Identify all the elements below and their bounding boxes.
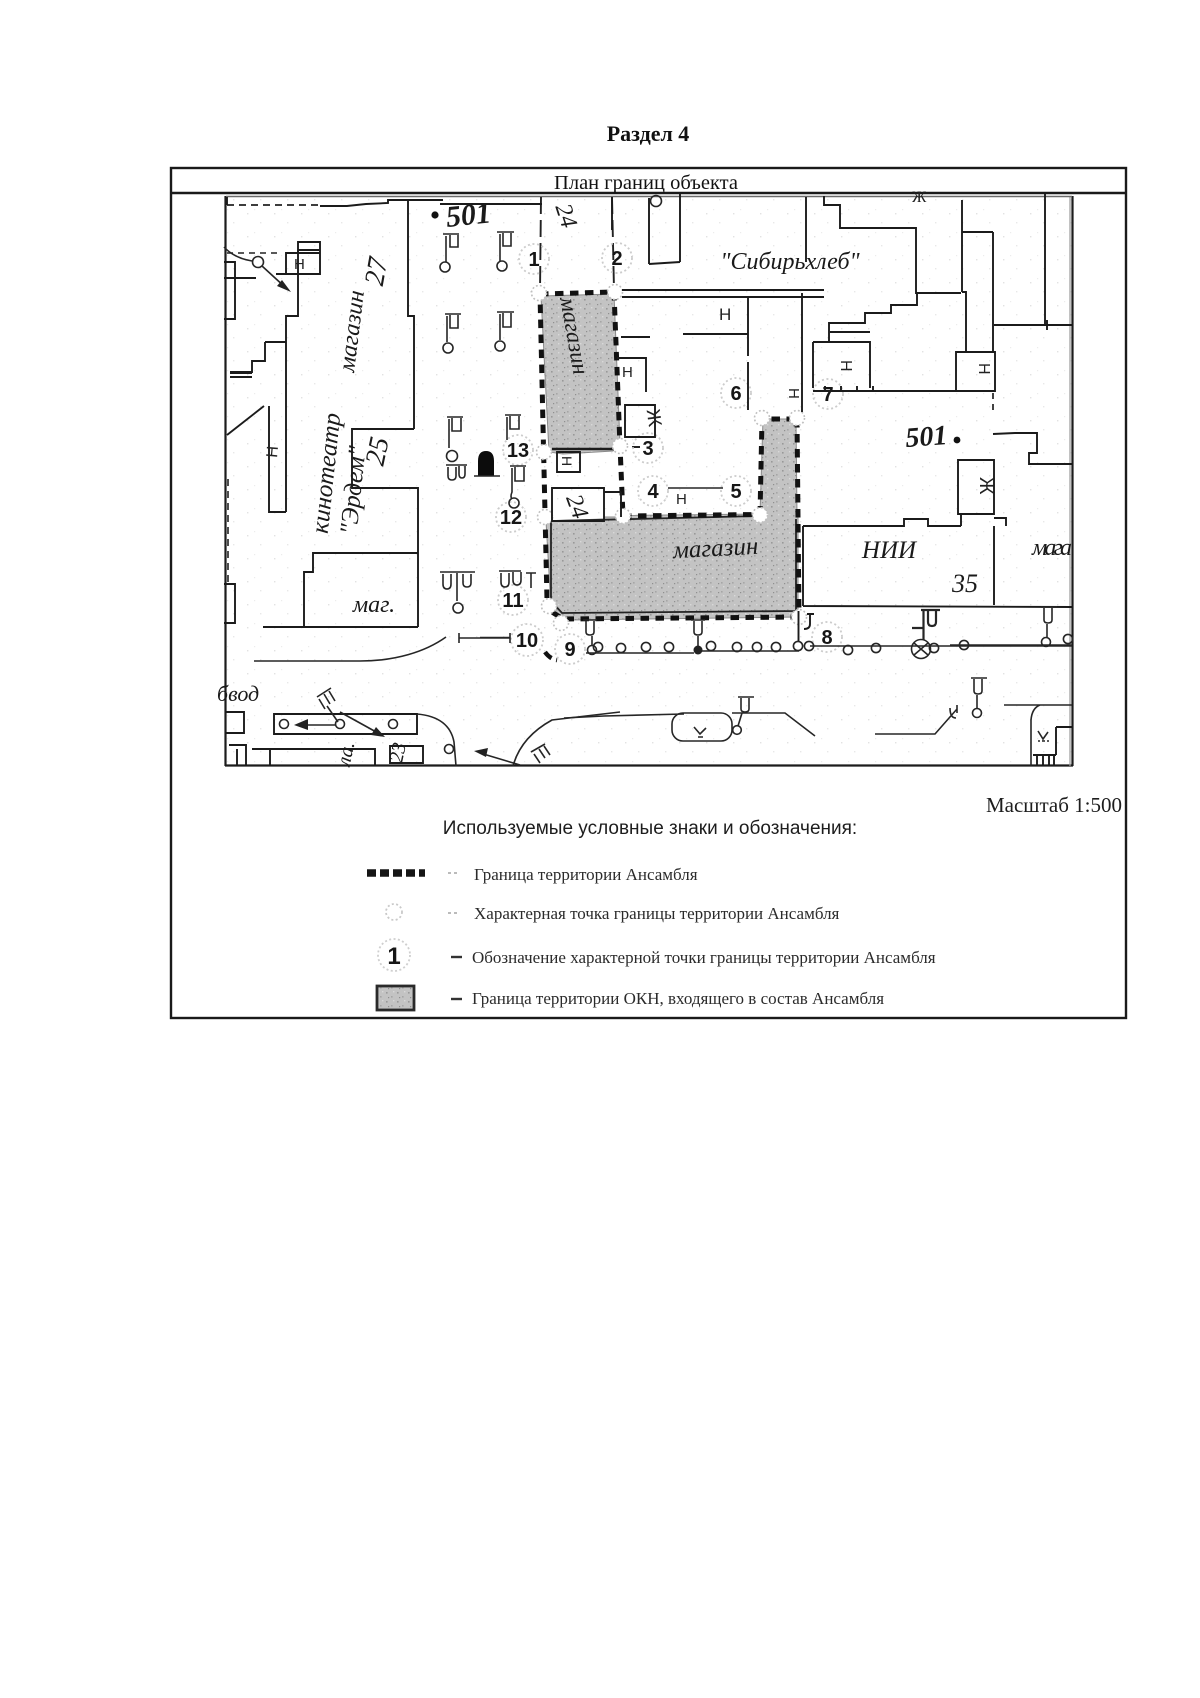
svg-text:Используемые условные знаки и: Используемые условные знаки и обозначени… [443,818,857,839]
svg-text:План границ объекта: План границ объекта [554,172,738,194]
svg-text:Обозначение характерной точки: Обозначение характерной точки границы те… [472,948,936,967]
svg-text:Н: Н [294,256,305,273]
svg-text:Н: Н [785,388,802,399]
svg-text:маг.: маг. [352,592,395,618]
svg-text:Характерная точка границы терр: Характерная точка границы территории Анс… [474,904,840,923]
svg-text:Ж: Ж [975,477,996,495]
svg-text:Ж: Ж [912,189,927,206]
svg-text:магазин: магазин [671,533,759,564]
svg-text:11: 11 [502,590,523,612]
svg-text:13: 13 [507,440,529,462]
svg-text:НИИ: НИИ [861,537,918,564]
svg-text:"Сибирьхлеб": "Сибирьхлеб" [720,249,860,275]
svg-text:6: 6 [730,383,741,405]
svg-text:9: 9 [564,639,575,661]
svg-text:мага: мага [1031,535,1072,561]
svg-text:10: 10 [516,630,538,652]
svg-text:Н: Н [559,456,575,466]
svg-text:501: 501 [904,420,948,454]
svg-text:2: 2 [611,248,622,270]
svg-text:Н: Н [975,363,992,375]
svg-text:Масштаб 1:500: Масштаб 1:500 [986,793,1122,817]
svg-text:Н: Н [837,360,854,372]
svg-text:1: 1 [528,249,539,271]
svg-text:3: 3 [642,438,653,460]
svg-text:Н: Н [719,305,731,324]
svg-text:Н: Н [264,445,282,458]
svg-text:12: 12 [500,507,522,529]
svg-text:Н: Н [676,491,687,508]
svg-text:1: 1 [387,943,400,970]
svg-text:5: 5 [730,481,741,503]
svg-text:Ж: Ж [642,408,665,429]
svg-text:4: 4 [647,481,659,503]
svg-text:бвод: бвод [217,681,259,706]
svg-text:501: 501 [444,196,492,234]
svg-text:35: 35 [951,569,978,598]
svg-text:Раздел 4: Раздел 4 [607,121,690,146]
svg-text:Граница территории ОКН, входящ: Граница территории ОКН, входящего в сост… [472,989,884,1008]
svg-text:Н: Н [622,364,633,381]
svg-text:Граница территории Ансамбля: Граница территории Ансамбля [474,865,698,884]
